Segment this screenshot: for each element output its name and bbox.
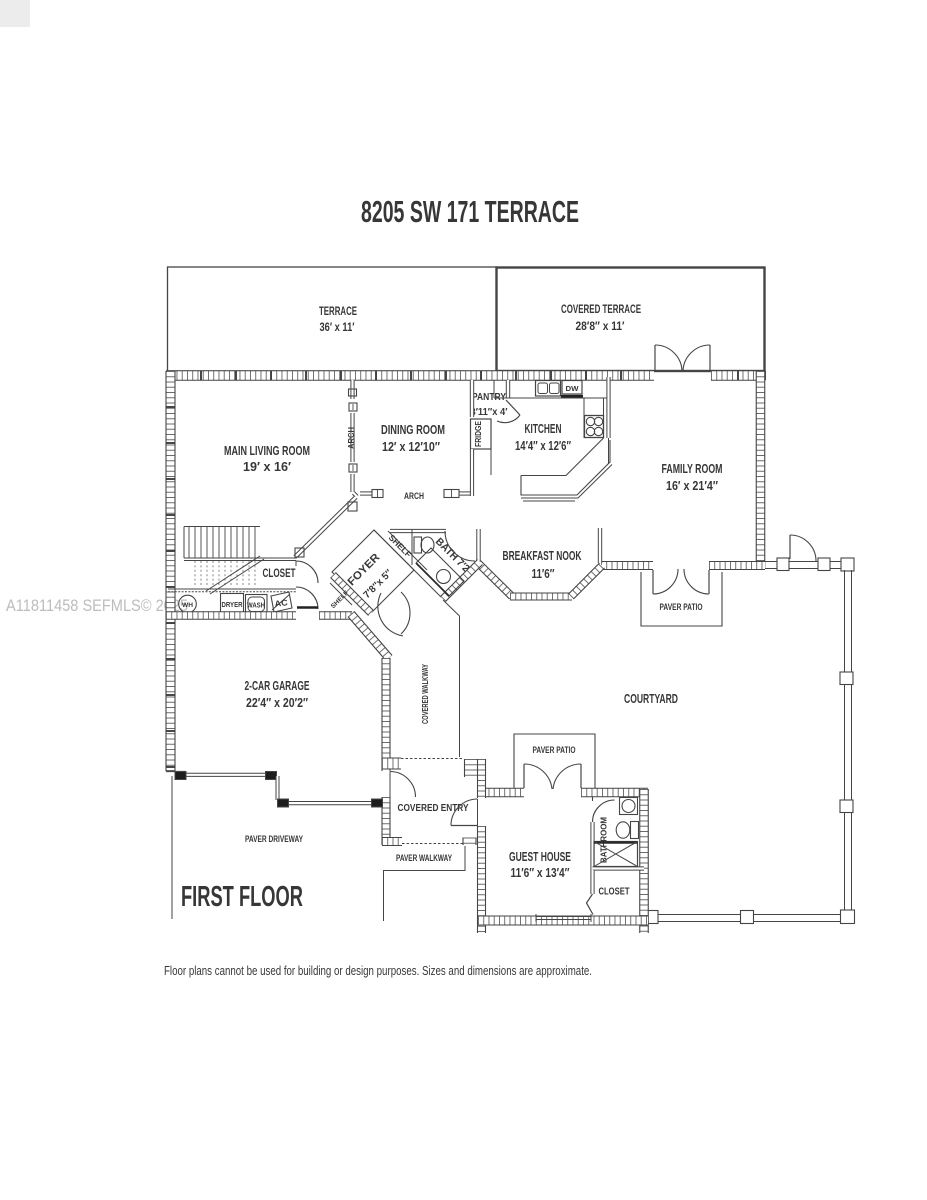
svg-text:FIRST FLOOR: FIRST FLOOR <box>181 881 303 913</box>
svg-text:14′4″ x 12′6″: 14′4″ x 12′6″ <box>515 439 571 453</box>
svg-text:12′ x 12′10″: 12′ x 12′10″ <box>382 440 440 454</box>
svg-text:28′8″ x 11′: 28′8″ x 11′ <box>576 321 625 333</box>
svg-text:22′4″ x 20′2″: 22′4″ x 20′2″ <box>246 696 308 710</box>
svg-text:FRIDGE: FRIDGE <box>474 421 483 447</box>
svg-text:Floor plans cannot be used for: Floor plans cannot be used for building … <box>164 963 592 978</box>
svg-text:PAVER PATIO: PAVER PATIO <box>660 602 703 612</box>
svg-text:BREAKFAST NOOK: BREAKFAST NOOK <box>503 549 582 563</box>
svg-text:8205 SW 171 TERRACE: 8205 SW 171 TERRACE <box>361 195 579 229</box>
svg-text:PAVER PATIO: PAVER PATIO <box>533 745 576 755</box>
svg-text:PANTRY: PANTRY <box>472 391 506 403</box>
svg-text:3′11″x 4′: 3′11″x 4′ <box>471 406 508 418</box>
svg-text:11′6″ x 13′4″: 11′6″ x 13′4″ <box>511 866 570 880</box>
svg-text:COVERED TERRACE: COVERED TERRACE <box>561 304 641 316</box>
svg-text:COVERED WALKWAY: COVERED WALKWAY <box>420 664 430 724</box>
svg-text:16′ x 21′4″: 16′ x 21′4″ <box>666 479 718 493</box>
svg-text:COURTYARD: COURTYARD <box>624 692 678 706</box>
svg-text:ARCH: ARCH <box>346 427 356 449</box>
svg-text:MAIN LIVING ROOM: MAIN LIVING ROOM <box>224 444 310 458</box>
svg-text:DINING ROOM: DINING ROOM <box>381 423 445 437</box>
svg-text:KITCHEN: KITCHEN <box>525 422 562 436</box>
svg-text:A11811458 SEFMLS© 2025: A11811458 SEFMLS© 2025 <box>6 596 188 615</box>
svg-text:CLOSET: CLOSET <box>263 568 296 580</box>
svg-text:2-CAR GARAGE: 2-CAR GARAGE <box>245 679 310 693</box>
svg-text:19′ x 16′: 19′ x 16′ <box>243 460 291 474</box>
svg-text:CLOSET: CLOSET <box>599 886 630 898</box>
svg-text:PAVER DRIVEWAY: PAVER DRIVEWAY <box>245 834 303 844</box>
svg-text:TERRACE: TERRACE <box>319 306 357 318</box>
svg-text:BATHROOM: BATHROOM <box>599 817 609 863</box>
svg-text:FAMILY ROOM: FAMILY ROOM <box>662 462 723 476</box>
svg-text:DW: DW <box>566 384 580 393</box>
svg-text:11′6″: 11′6″ <box>532 567 555 581</box>
svg-text:DRYER: DRYER <box>222 600 244 609</box>
svg-text:AC: AC <box>274 597 288 609</box>
svg-text:WASH: WASH <box>247 601 265 610</box>
svg-text:WH: WH <box>182 602 194 609</box>
svg-text:GUEST HOUSE: GUEST HOUSE <box>509 850 571 864</box>
svg-text:ARCH: ARCH <box>404 491 424 501</box>
svg-text:36′ x 11′: 36′ x 11′ <box>320 322 355 334</box>
svg-text:PAVER WALKWAY: PAVER WALKWAY <box>396 853 452 863</box>
